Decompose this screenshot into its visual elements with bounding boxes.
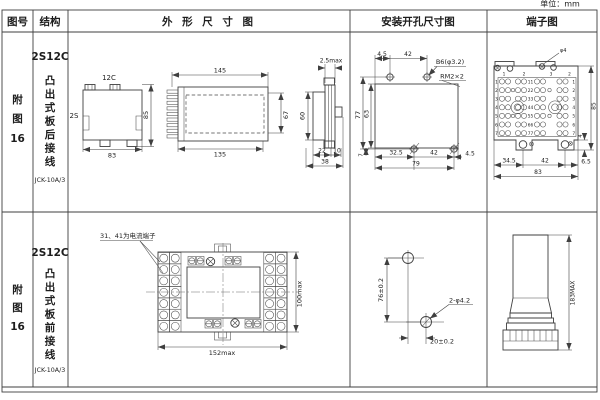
row2-model: 2S12C xyxy=(31,247,68,259)
row1-outline-front-view: 12C 2S 85 83 xyxy=(70,74,154,160)
row2-fig-char: 16 xyxy=(10,321,25,333)
terminal-small-hole xyxy=(548,114,551,117)
top-screws xyxy=(495,64,557,72)
header-outline: 外 形 尺 寸 图 xyxy=(161,15,256,28)
install-offset-top-dim: 4.5 xyxy=(377,51,387,58)
terminal-hole xyxy=(563,96,568,101)
row2-structure-char: 式 xyxy=(45,294,56,307)
terminal-hole xyxy=(515,96,520,101)
terminal-height-dim: 85 xyxy=(591,102,598,110)
terminal-hole xyxy=(505,88,510,93)
terminal-hole xyxy=(540,122,545,127)
terminal-screw-hole xyxy=(160,266,168,274)
terminal-row-number: 2 xyxy=(572,88,575,94)
table-header-row: 图号 结构 外 形 尺 寸 图 安装开孔尺寸图 端子图 xyxy=(7,15,558,28)
install-width-total-dim: 79 xyxy=(412,161,420,168)
header-terminal: 端子图 xyxy=(526,15,558,28)
terminal-hole xyxy=(515,79,520,84)
terminal-small-hole xyxy=(511,88,514,91)
edge-depth-body-dim: 22 xyxy=(318,148,326,155)
terminal-pair-label: 11 xyxy=(528,79,534,85)
terminal-screw-hole xyxy=(160,254,168,262)
front-top-tab-label: 12C xyxy=(102,74,116,82)
terminal-hole xyxy=(515,113,520,118)
install2-vertical-dim: 76±0.2 xyxy=(377,278,385,302)
terminal-pair-label: 44 xyxy=(528,105,534,111)
terminal-width-total-dim: 83 xyxy=(534,169,542,176)
terminal-row-number: 6 xyxy=(495,122,498,128)
terminal-screw-label: φ4 xyxy=(560,48,566,54)
socket-pins xyxy=(510,330,552,341)
terminal-hole xyxy=(505,131,510,136)
terminal-screw-hole xyxy=(277,254,285,262)
row1-structure-char: 凸 xyxy=(45,75,56,87)
connector-pins xyxy=(167,90,178,138)
row1-structure-char: 板 xyxy=(45,115,56,128)
terminal-screw-hole xyxy=(171,277,179,285)
row1-fig-char: 附 xyxy=(12,93,23,106)
terminal-hole xyxy=(521,113,526,118)
row2-structure-char: 接 xyxy=(45,335,56,348)
current-terminal-note: 31、41为电流端子 xyxy=(100,231,156,240)
side-length-bottom-dim: 135 xyxy=(214,151,226,159)
terminal-hole xyxy=(540,96,545,101)
terminal-hole xyxy=(534,122,539,127)
terminal-hole xyxy=(505,96,510,101)
terminal-hole xyxy=(540,105,545,110)
terminal-screw-hole xyxy=(266,266,274,274)
terminal-hole xyxy=(540,88,545,93)
side-length-top-dim: 145 xyxy=(214,67,226,75)
terminal-row-number: 5 xyxy=(572,114,575,120)
terminal-pair-label: 66 xyxy=(528,122,534,128)
edge-flange-thickness-dim: 2.5max xyxy=(320,58,343,65)
terminal-small-hole xyxy=(511,114,514,117)
row1-structure-char: 接 xyxy=(45,142,56,155)
terminal-hole xyxy=(563,131,568,136)
row2-fig-number: 附 图 16 xyxy=(10,283,25,333)
row2-install-drawing: 76±0.2 2-φ4.2 20±0.2 xyxy=(377,250,473,346)
install2-holes-label: 2-φ4.2 xyxy=(449,297,470,305)
terminal-hole xyxy=(557,113,562,118)
terminal-small-hole xyxy=(548,88,551,91)
terminal-hole xyxy=(563,113,568,118)
terminal-hole xyxy=(534,88,539,93)
terminal-grid: 12321111222233334444555566667777 xyxy=(495,72,575,137)
mounting-bushing xyxy=(549,101,562,114)
terminal-row-number: 4 xyxy=(572,105,575,111)
terminal-hole xyxy=(563,122,568,127)
terminal-screw-hole xyxy=(160,277,168,285)
terminal-hole xyxy=(521,79,526,84)
terminal-hole xyxy=(534,105,539,110)
header-install: 安装开孔尺寸图 xyxy=(381,15,455,28)
edge-body-height-dim: 60 xyxy=(299,112,307,120)
terminal-hole xyxy=(499,122,504,127)
header-fig-no: 图号 xyxy=(7,16,28,28)
terminal-screw-hole xyxy=(171,266,179,274)
row1-structure-cell: 2S12C 凸 出 式 板 后 接 线 JCK-10A/3 xyxy=(31,51,68,184)
terminal-col-label: 2 xyxy=(523,72,526,78)
terminal-hole xyxy=(563,105,568,110)
terminal-bottom3-dim: 6.5 xyxy=(581,159,591,166)
terminal-screw-hole xyxy=(277,266,285,274)
terminal-row-number: 1 xyxy=(495,79,498,85)
side2-height-dim: 183MAX xyxy=(570,281,577,306)
drawing-sheet: 单位：mm 图号 结构 外 形 尺 寸 图 安装开孔尺寸图 端子图 附 图 16… xyxy=(0,0,600,400)
terminal-hole xyxy=(557,79,562,84)
front2-height-dim: 100max xyxy=(296,281,304,308)
install2-horizontal-dim: 20±0.2 xyxy=(430,338,454,346)
install-height-outer-dim: 77 xyxy=(354,111,362,119)
bottom-hardware xyxy=(205,319,261,340)
terminal-screw-hole xyxy=(277,277,285,285)
row1-fig-number: 附 图 16 xyxy=(10,93,25,145)
row2-structure-char: 板 xyxy=(45,308,56,321)
terminal-hole xyxy=(499,113,504,118)
row2-structure-char: 出 xyxy=(45,281,56,294)
terminal-hole xyxy=(557,122,562,127)
terminal-hole xyxy=(540,113,545,118)
install-thread-label: RM2×2 xyxy=(440,73,464,81)
terminal-hole xyxy=(563,79,568,84)
catalog-page: 单位：mm 图号 结构 外 形 尺 寸 图 安装开孔尺寸图 端子图 附 图 16… xyxy=(0,0,600,400)
row2-structure-cell: 2S12C 凸 出 式 板 前 接 线 JCK-10A/3 xyxy=(31,247,68,374)
terminal-col-label: 1 xyxy=(503,72,506,78)
mounting-bushing xyxy=(511,101,524,114)
terminal-hole xyxy=(557,88,562,93)
terminal-screw-hole xyxy=(160,300,168,308)
unit-label: 单位：mm xyxy=(540,0,580,9)
row2-fig-char: 图 xyxy=(12,302,23,314)
terminal-hole xyxy=(563,88,568,93)
terminal-hole xyxy=(499,105,504,110)
header-structure: 结构 xyxy=(40,15,61,28)
terminal-hole xyxy=(534,79,539,84)
terminal-hole xyxy=(515,105,520,110)
terminal-bottom2-dim: 42 xyxy=(541,158,549,165)
terminal-screw-hole xyxy=(171,311,179,319)
mounting-bushing-inner xyxy=(552,104,559,111)
feet-screws xyxy=(519,141,572,149)
terminal-row-number: 5 xyxy=(495,114,498,120)
terminal-screw-hole xyxy=(277,311,285,319)
front-width-dim: 83 xyxy=(108,152,116,160)
install-bottom2-dim: 42 xyxy=(430,150,438,157)
edge-depth-total-dim: 38 xyxy=(321,159,329,166)
terminal-pair-label: 33 xyxy=(528,97,534,103)
row1-structure-char: 后 xyxy=(45,128,56,141)
row2-type-code: JCK-10A/3 xyxy=(34,367,65,374)
terminal-hole xyxy=(557,131,562,136)
install-hole-spec-label: B6(φ3.2) xyxy=(436,58,464,66)
terminal-hole xyxy=(534,96,539,101)
terminal-hole xyxy=(499,79,504,84)
terminal-row-number: 2 xyxy=(495,88,498,94)
terminal-hole xyxy=(534,131,539,136)
front2-width-dim: 152max xyxy=(209,349,236,357)
terminal-hole xyxy=(557,96,562,101)
terminal-hole xyxy=(505,122,510,127)
terminal-screw-hole xyxy=(277,300,285,308)
terminal-hole xyxy=(534,113,539,118)
row2-fig-char: 附 xyxy=(12,283,23,296)
terminal-row-number: 7 xyxy=(572,131,575,137)
terminal-screw-hole xyxy=(171,254,179,262)
row2-structure-char: 前 xyxy=(45,321,56,334)
terminal-screw-hole xyxy=(171,300,179,308)
terminal-screw-hole xyxy=(266,254,274,262)
side-height-inner-dim: 67 xyxy=(282,111,290,119)
terminal-hole xyxy=(499,96,504,101)
terminal-row-number: 3 xyxy=(572,97,575,103)
terminal-screw-hole xyxy=(266,311,274,319)
terminal-hole xyxy=(515,122,520,127)
terminal-foot-offset-dim: 4 xyxy=(578,134,584,137)
terminal-pair-label: 55 xyxy=(528,114,534,120)
install-pitch-top-dim: 42 xyxy=(404,51,412,58)
terminal-hole xyxy=(505,79,510,84)
terminal-hole xyxy=(540,79,545,84)
install-offset-bottom-dim: 7 xyxy=(359,153,365,157)
terminal-hole xyxy=(515,88,520,93)
terminal-hole xyxy=(540,131,545,136)
terminal-pair-label: 77 xyxy=(528,131,534,137)
install-bottom3-dim: 4.5 xyxy=(465,151,475,158)
terminal-screw-hole xyxy=(171,322,179,330)
row1-outline-side-view: 145 135 67 xyxy=(167,67,290,159)
terminal-hole xyxy=(499,88,504,93)
terminal-screw-hole xyxy=(160,311,168,319)
row1-structure-char: 出 xyxy=(45,88,56,101)
terminal-row-number: 6 xyxy=(572,122,575,128)
terminal-hole xyxy=(499,131,504,136)
terminal-screw-hole xyxy=(266,322,274,330)
row2-structure-char: 线 xyxy=(45,348,56,361)
install-bottom1-dim: 32.5 xyxy=(389,150,403,157)
terminal-screw-hole xyxy=(266,300,274,308)
terminal-row-number: 7 xyxy=(495,131,498,137)
terminal-hole xyxy=(521,88,526,93)
row1-install-drawing: B6(φ3.2) RM2×2 4.5 42 77 63 7 32.5 42 4.… xyxy=(354,51,475,170)
terminal-hole xyxy=(521,131,526,136)
terminal-hole xyxy=(505,113,510,118)
row1-structure-char: 式 xyxy=(45,101,56,114)
terminal-hole xyxy=(515,131,520,136)
terminal-col-label: 3 xyxy=(550,72,553,78)
row1-outline-edge-view: 2.5max 60 22 10 38 xyxy=(299,58,344,169)
front-height-dim: 85 xyxy=(142,111,150,119)
terminal-screw-hole xyxy=(160,322,168,330)
terminal-row-number: 3 xyxy=(495,97,498,103)
row1-type-code: JCK-10A/3 xyxy=(34,177,65,184)
edge-depth-flange-dim: 10 xyxy=(333,148,341,155)
top-hardware xyxy=(188,244,241,266)
terminal-hole xyxy=(505,105,510,110)
terminal-col-label: 2 xyxy=(568,72,571,78)
front-side-tab-label: 2S xyxy=(70,112,79,120)
terminal-hole xyxy=(521,96,526,101)
row1-terminal-drawing: φ4 12321111222233334444555566667777 34.5… xyxy=(494,48,598,180)
terminal-pair-label: 22 xyxy=(528,88,534,94)
row1-structure-char: 线 xyxy=(45,155,56,168)
terminal-row-number: 1 xyxy=(572,79,575,85)
install-height-inner-dim: 63 xyxy=(363,110,371,118)
terminal-screw-hole xyxy=(266,277,274,285)
terminal-row-number: 4 xyxy=(495,105,498,111)
terminal-hole xyxy=(521,122,526,127)
terminal-bottom1-dim: 34.5 xyxy=(502,158,516,165)
row2-outline-front-view: 31、41为电流端子 xyxy=(100,231,304,357)
row2-terminal-drawing: 183MAX xyxy=(503,235,577,350)
terminal-screw-hole xyxy=(277,322,285,330)
row1-fig-char: 16 xyxy=(10,133,25,145)
row1-model: 2S12C xyxy=(31,51,68,63)
row2-structure-char: 凸 xyxy=(45,268,56,280)
row1-fig-char: 图 xyxy=(12,113,23,125)
